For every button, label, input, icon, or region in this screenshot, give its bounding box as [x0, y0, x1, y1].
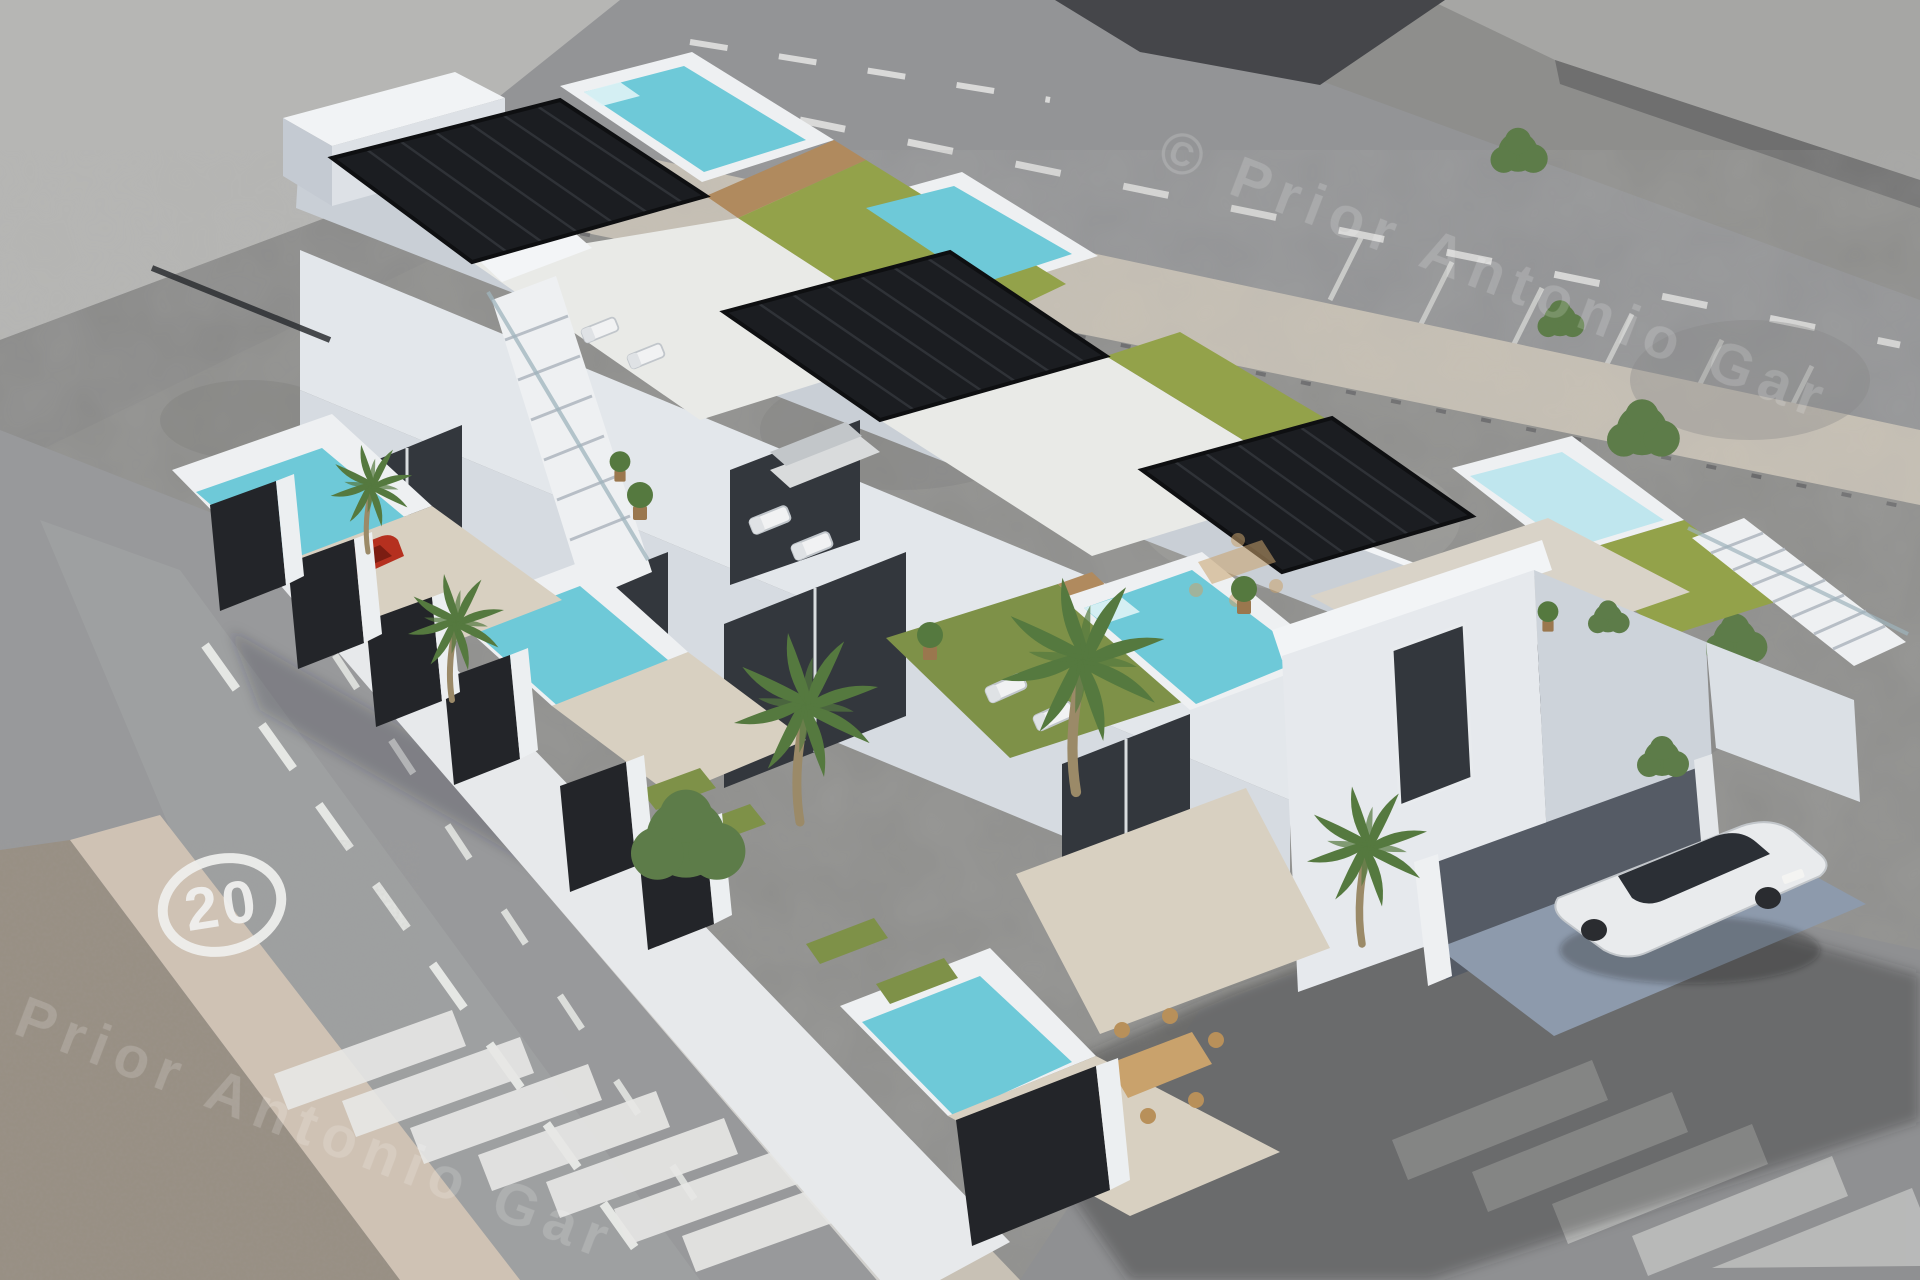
speed-limit-text: 20 [180, 866, 264, 944]
scene-canvas: 20 © Prior Antonio Gar © Prior Antonio G… [0, 0, 1920, 1280]
aerial-render-scene: 20 © Prior Antonio Gar © Prior Antonio G… [0, 0, 1920, 1280]
right-tower [1272, 518, 1908, 1036]
tower-window [1392, 624, 1472, 806]
